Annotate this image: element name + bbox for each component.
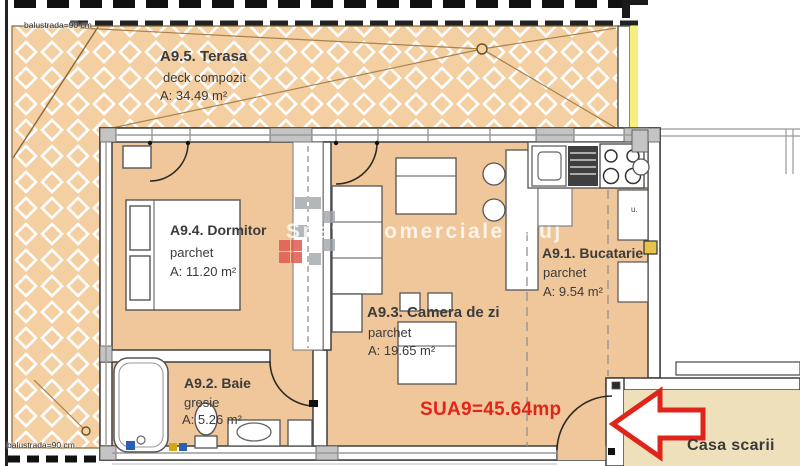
kitchen-cabinet: [618, 262, 648, 302]
pillow-2: [130, 256, 150, 300]
living-material: parchet: [368, 326, 411, 340]
frame-corner-bracket: [622, 0, 648, 5]
living-area: A: 19.65 m²: [368, 344, 435, 358]
floor-plan: Spatii Comerciale Cluj A9.5. Terasa deck…: [0, 0, 800, 466]
stool-1: [483, 163, 505, 185]
terrace-end-wall: [618, 26, 630, 130]
kitchen-material: parchet: [543, 266, 586, 280]
terrace-drain2-icon: [82, 427, 90, 435]
duct-block: [632, 130, 648, 152]
bathroom-area: A: 5.26 m²: [182, 413, 242, 427]
valve-icon-blue2: [179, 443, 187, 451]
bathroom-wall-right: [313, 350, 327, 446]
washbasin-bowl: [237, 423, 271, 441]
frame-left-line: [5, 0, 8, 466]
living-title: A9.3. Camera de zi: [367, 305, 500, 322]
bedroom-title: A9.4. Dormitor: [170, 223, 266, 238]
entry-threshold: [557, 446, 606, 460]
kitchen-sink-bowl: [538, 152, 561, 180]
total-usable-area: SUA9=45.64mp: [420, 400, 561, 421]
pillow-1: [130, 206, 150, 250]
terrace-top-band: [75, 26, 618, 128]
bedroom-area: A: 11.20 m²: [170, 265, 236, 279]
bathroom-title: A9.2. Baie: [184, 376, 251, 391]
stairwell-label: Casa scarii: [687, 437, 775, 455]
adjacent-walls: [660, 129, 800, 174]
pipe-icon: [633, 159, 649, 175]
boiler-icon: [644, 241, 657, 254]
balustrade-note-top: balustrada=90 cm: [24, 21, 92, 30]
armchair: [396, 158, 456, 214]
kitchen-title: A9.1. Bucatarie: [542, 246, 643, 261]
terrace-title: A9.5. Terasa: [160, 49, 247, 66]
balustrade-note-bottom: balustrada=90 cm: [7, 441, 75, 450]
stairwell-upper-wall: [676, 362, 800, 375]
wall-highlight-strip: [630, 26, 638, 128]
toilet-tank: [195, 436, 217, 448]
stairwell-wall-h: [606, 378, 800, 390]
washing-machine: [288, 420, 312, 446]
bathtub-drain-icon: [137, 436, 145, 444]
valve-icon-blue1: [126, 441, 135, 450]
cabinet-mark: u.: [631, 206, 638, 215]
stool-2: [483, 199, 505, 221]
bedroom-material: parchet: [170, 246, 213, 260]
terrace-area: A: 34.49 m²: [160, 89, 227, 103]
watermark-text: Spatii Comerciale Cluj: [286, 220, 563, 243]
frame-corner-bracket-leg: [622, 5, 630, 18]
valve-icon-yellow: [169, 443, 177, 451]
terrace-drain-icon: [477, 44, 487, 54]
bathroom-material: gresie: [184, 396, 219, 410]
sofa-chaise: [332, 294, 362, 332]
nightstand: [123, 146, 151, 168]
tall-cabinet: [618, 190, 648, 240]
kitchen-area: A: 9.54 m²: [543, 285, 603, 299]
kitchen-drainer: [568, 146, 598, 186]
terrace-material: deck compozit: [163, 71, 246, 85]
